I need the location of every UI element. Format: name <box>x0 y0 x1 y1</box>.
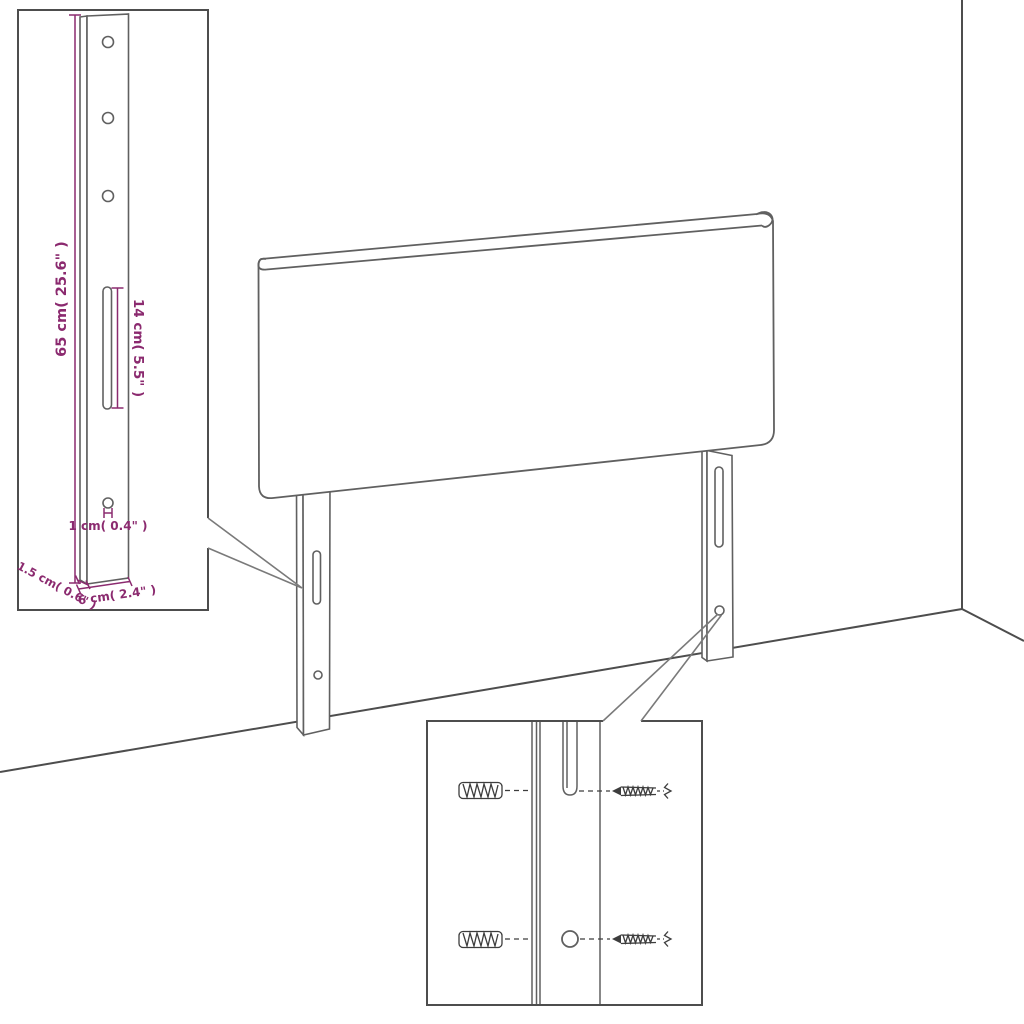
floor-edge-right <box>962 609 1024 641</box>
dimension-label-leg-height: 65 cm( 25.6" ) <box>54 241 70 357</box>
right-leg-hole <box>715 606 724 615</box>
diagram-canvas: 65 cm( 25.6" ) 14 cm( 5.5" ) 1 cm( 0.4" … <box>0 0 1024 1024</box>
left-leg-front-face <box>303 480 330 735</box>
headboard-panel <box>258 212 774 498</box>
headboard-outline <box>259 213 775 498</box>
left-leg-hole <box>314 671 322 679</box>
leg-detail-hole-1 <box>103 37 114 48</box>
mounting-detail-box-fill <box>427 721 702 1005</box>
leg-detail-hole-2 <box>103 113 114 124</box>
leg-detail-hole-3 <box>103 191 114 202</box>
leg-detail-slot <box>103 287 112 409</box>
left-leg-slot <box>313 551 321 604</box>
leg-detail-side-face <box>80 16 87 584</box>
dimension-label-hole-diameter: 1 cm( 0.4" ) <box>69 519 148 533</box>
mounting-detail-inset <box>427 614 722 1005</box>
leg-detail-callout-lines <box>208 518 302 588</box>
right-leg <box>702 450 733 661</box>
leg-detail-bottom-hole <box>103 498 113 508</box>
right-leg-slot <box>715 467 723 547</box>
left-leg <box>297 480 331 735</box>
dimension-label-slot-length: 14 cm( 5.5" ) <box>130 299 146 397</box>
leg-detail-drawing <box>80 14 129 584</box>
diagram-page: 65 cm( 25.6" ) 14 cm( 5.5" ) 1 cm( 0.4" … <box>0 0 1024 1024</box>
